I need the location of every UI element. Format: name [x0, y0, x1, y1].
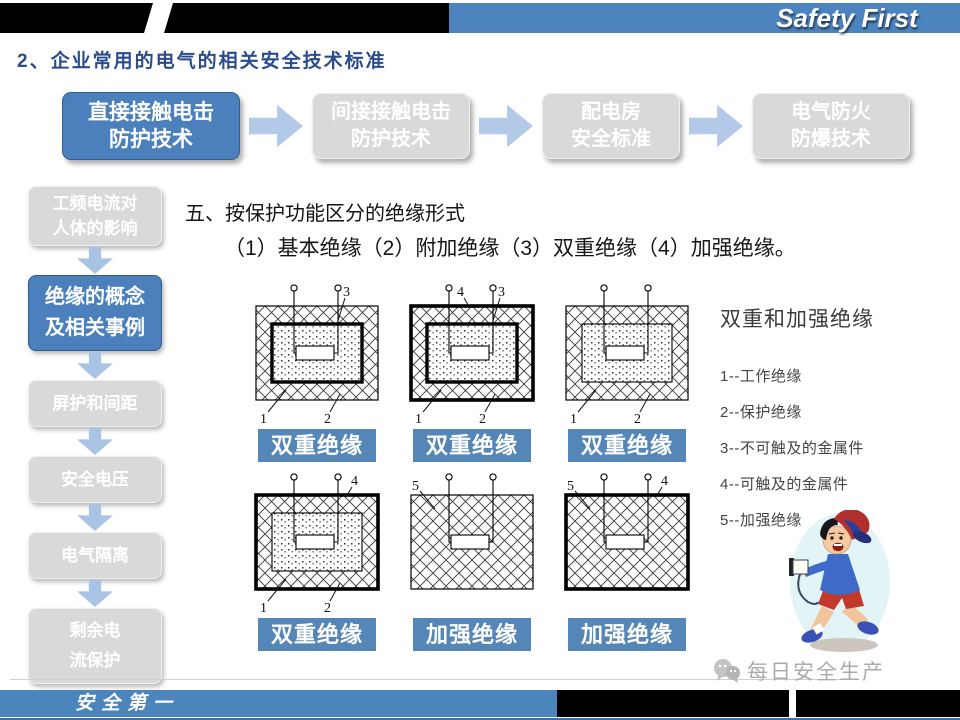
legend-title: 双重和加强绝缘: [720, 303, 958, 333]
flow-box-distribution-room: 配电房 安全标准: [542, 93, 680, 159]
diagram-caption: 双重绝缘: [258, 429, 376, 462]
flow-box-indirect-contact: 间接接触电击 防护技术: [312, 93, 470, 159]
diagram-number-label: 5: [567, 479, 574, 494]
brand-safety-first: Safety First: [752, 3, 942, 33]
legend-item: 4--可触及的金属件: [720, 473, 958, 494]
diagram-figure: 5: [407, 469, 537, 615]
chat-bubbles-logo-icon: [712, 656, 742, 686]
watermark-text: 每日安全生产: [747, 656, 885, 686]
diagram-figure: 312: [252, 280, 382, 426]
diagram-number-label: 5: [412, 479, 419, 494]
footer-slogan: 安全第一: [0, 690, 557, 717]
diagram-figure: 12: [562, 280, 692, 426]
sub-heading: （1）基本绝缘（2）附加绝缘（3）双重绝缘（4）加强绝缘。: [224, 232, 796, 262]
insulation-diagram: 312双重绝缘: [252, 280, 382, 462]
footer-white-tick: [789, 690, 796, 717]
diagram-number-label: 4: [457, 285, 464, 300]
diagram-caption: 双重绝缘: [258, 618, 376, 651]
insulation-diagram: 4312双重绝缘: [407, 280, 537, 462]
top-black-bar-left: [0, 3, 153, 33]
sidebar-item-current-effect: 工频电流对 人体的影响: [28, 186, 162, 246]
right-arrow-icon: [479, 103, 533, 149]
legend-item: 1--工作绝缘: [720, 365, 958, 386]
legend-item: 3--不可触及的金属件: [720, 437, 958, 458]
topic-flow: 直接接触电击 防护技术 间接接触电击 防护技术 配电房 安全标准 电气防火 防爆…: [62, 92, 910, 160]
diagram-number-label: 2: [324, 412, 331, 426]
main-heading: 五、按保护功能区分的绝缘形式: [185, 197, 465, 226]
slide: Safety First 2、企业常用的电气的相关安全技术标准 直接接触电击 防…: [0, 0, 960, 720]
sidebar-item-residual-current: 剩余电 流保护: [28, 608, 162, 684]
watermark: 每日安全生产: [712, 656, 885, 686]
legend: 双重和加强绝缘 1--工作绝缘2--保护绝缘3--不可触及的金属件4--可触及的…: [720, 303, 958, 545]
diagram-figure: 54: [562, 469, 692, 615]
diagram-caption: 加强绝缘: [568, 618, 686, 651]
diagram-caption: 双重绝缘: [568, 429, 686, 462]
footer-blue-bar: 安全第一: [0, 690, 557, 717]
diagram-number-label: 1: [415, 412, 422, 426]
down-arrow-icon: [77, 504, 113, 531]
sidebar-item-insulation-concept: 绝缘的概念 及相关事例: [28, 275, 162, 351]
sidebar-item-safe-voltage: 安全电压: [28, 456, 162, 503]
section-title: 2、企业常用的电气的相关安全技术标准: [17, 46, 387, 73]
diagram-figure: 4312: [407, 280, 537, 426]
diagram-figure: 412: [252, 469, 382, 615]
down-arrow-icon: [77, 580, 113, 607]
down-arrow-icon: [77, 352, 113, 379]
legend-list: 1--工作绝缘2--保护绝缘3--不可触及的金属件4--可触及的金属件5--加强…: [720, 365, 958, 530]
insulation-diagram: 12双重绝缘: [562, 280, 692, 462]
insulation-diagram-grid: 312双重绝缘4312双重绝缘12双重绝缘412双重绝缘5加强绝缘54加强绝缘: [252, 280, 692, 651]
sidebar-item-electrical-isolation: 电气隔离: [28, 532, 162, 579]
down-arrow-icon: [77, 428, 113, 455]
sidebar-chain: 工频电流对 人体的影响 绝缘的概念 及相关事例 屏护和间距 安全电压 电气隔离 …: [28, 186, 162, 684]
insulation-diagram: 5加强绝缘: [407, 469, 537, 651]
flow-box-fire-explosion: 电气防火 防爆技术: [752, 93, 910, 159]
diagram-number-label: 4: [661, 474, 668, 489]
sidebar-item-shielding: 屏护和间距: [28, 380, 162, 427]
footer-black-bar: [557, 690, 960, 717]
insulation-diagram: 54加强绝缘: [562, 469, 692, 651]
right-arrow-icon: [689, 103, 743, 149]
diagram-caption: 加强绝缘: [413, 618, 531, 651]
legend-item: 2--保护绝缘: [720, 401, 958, 422]
flow-box-direct-contact: 直接接触电击 防护技术: [62, 92, 240, 160]
diagram-caption: 双重绝缘: [413, 429, 531, 462]
diagram-number-label: 1: [260, 412, 267, 426]
diagram-number-label: 4: [351, 474, 358, 489]
diagram-number-label: 2: [479, 412, 486, 426]
diagram-number-label: 2: [634, 412, 641, 426]
diagram-number-label: 1: [570, 412, 577, 426]
cartoon-boy: [788, 510, 892, 660]
diagram-number-label: 3: [343, 285, 350, 300]
diagram-number-label: 3: [498, 285, 505, 300]
diagram-number-label: 2: [324, 601, 331, 615]
right-arrow-icon: [249, 103, 303, 149]
insulation-diagram: 412双重绝缘: [252, 469, 382, 651]
top-black-bar-right: [164, 3, 449, 33]
down-arrow-icon: [77, 247, 113, 274]
diagram-number-label: 1: [260, 601, 267, 615]
